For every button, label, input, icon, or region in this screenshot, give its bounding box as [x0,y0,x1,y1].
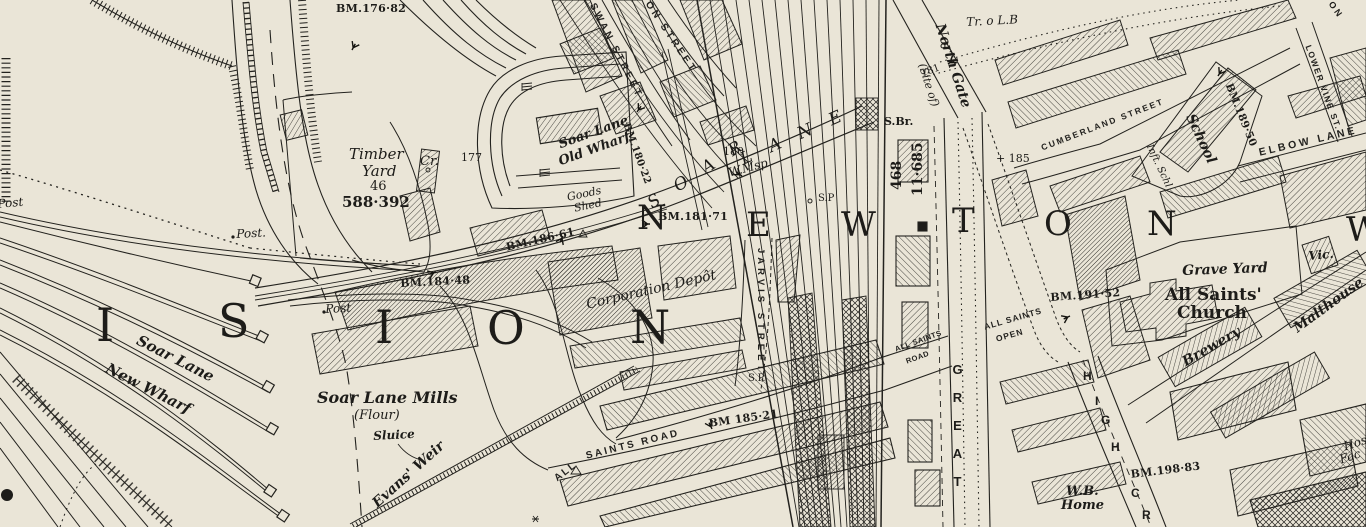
map: BM.176·82TimberYard46588·392Cr.177Soar L… [0,0,1366,527]
all-saints-road [548,336,952,527]
northeast-streets [995,0,1366,228]
map-linework [0,0,1366,527]
northwest-road [92,0,372,527]
top-center-streets [470,0,754,256]
timber-yard [280,92,440,272]
